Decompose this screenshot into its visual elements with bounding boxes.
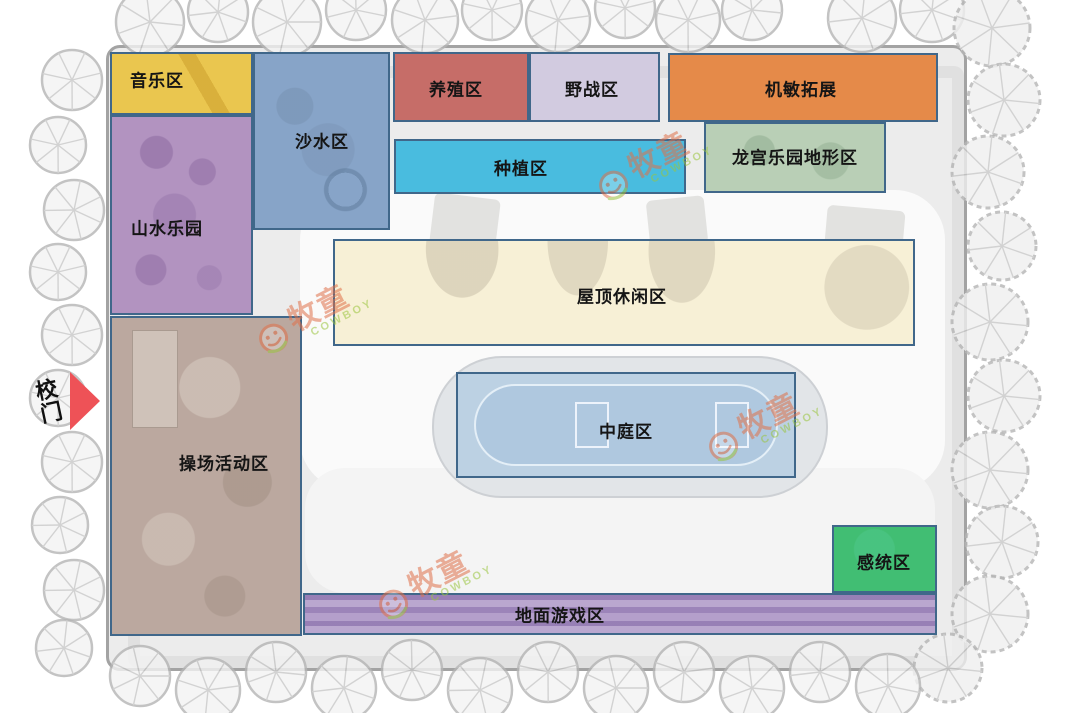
tree-icon — [42, 305, 102, 365]
tree-icon — [30, 244, 86, 300]
school-gate: 校门 — [38, 372, 100, 430]
tree-icon — [32, 497, 88, 553]
zone-label-dragon-palace: 龙宫乐园地形区 — [732, 144, 858, 169]
tree-icon — [30, 117, 86, 173]
tree-icon — [595, 0, 655, 38]
zone-label-agility-development: 机敏拓展 — [765, 76, 837, 101]
zone-playground-activity — [110, 316, 302, 636]
zone-label-playground-activity: 操场活动区 — [179, 450, 269, 475]
zone-label-ground-game: 地面游戏区 — [515, 602, 605, 627]
tree-icon — [966, 506, 1038, 578]
tree-icon — [44, 560, 104, 620]
zone-label-mountain-water-park: 山水乐园 — [131, 215, 203, 240]
school-gate-arrow-icon — [70, 372, 100, 430]
zone-label-field-battle: 野战区 — [565, 76, 619, 101]
zone-label-planting: 种植区 — [494, 155, 548, 180]
zone-label-sensory: 感统区 — [857, 549, 911, 574]
tree-icon — [326, 0, 386, 40]
site-plan: 音乐区山水乐园沙水区养殖区野战区机敏拓展种植区龙宫乐园地形区屋顶休闲区中庭区操场… — [0, 0, 1080, 713]
tree-icon — [36, 620, 92, 676]
tree-icon — [722, 0, 782, 40]
zone-label-sand-water: 沙水区 — [295, 128, 349, 153]
school-gate-label: 校门 — [33, 376, 68, 427]
tree-icon — [968, 212, 1036, 280]
tree-icon — [968, 64, 1040, 136]
zone-label-breeding: 养殖区 — [429, 76, 483, 101]
zone-decoration — [305, 595, 935, 633]
zone-ground-game — [303, 593, 937, 635]
tree-icon — [42, 432, 102, 492]
tree-icon — [44, 180, 104, 240]
tree-icon — [42, 50, 102, 110]
zone-label-atrium: 中庭区 — [599, 418, 653, 443]
tree-icon — [462, 0, 522, 40]
tree-icon — [968, 360, 1040, 432]
zone-label-rooftop-leisure: 屋顶休闲区 — [577, 283, 667, 308]
tree-icon — [900, 0, 964, 42]
zone-decoration — [112, 318, 300, 634]
zone-label-music: 音乐区 — [130, 67, 184, 92]
tree-icon — [188, 0, 248, 42]
